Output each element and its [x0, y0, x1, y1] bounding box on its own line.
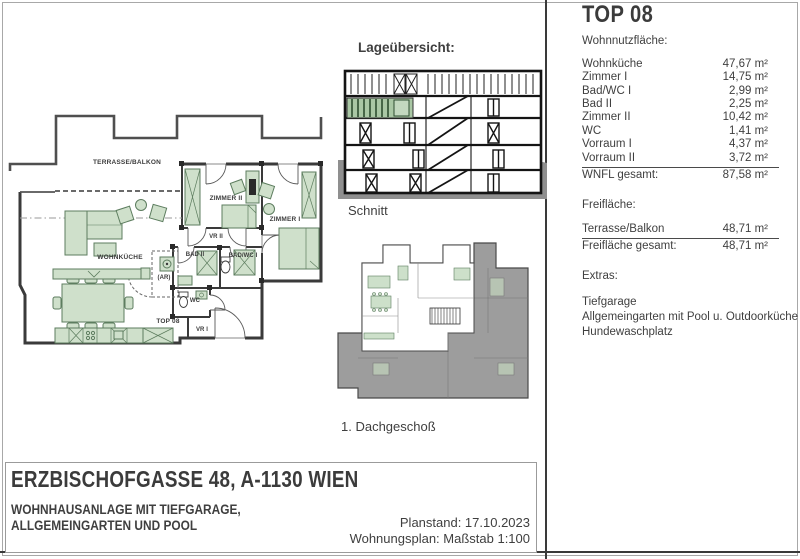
extras-item: Tiefgarage [582, 295, 797, 310]
key-plan [338, 238, 550, 418]
room-row: Vorraum I4,37 m² [582, 138, 768, 151]
frei-total-label: Freifläche gesamt: [582, 240, 677, 253]
info-panel: TOP 08 Wohnnutzfläche: Wohnküche47,67 m²… [582, 8, 797, 340]
subtitle-line1: WOHNHAUSANLAGE MIT TIEFGARAGE, [11, 502, 241, 518]
toilet-badwc1 [221, 257, 230, 273]
label-ar: (AR) [157, 275, 170, 281]
glass-front [20, 191, 182, 192]
bed-zimmer1 [279, 228, 319, 269]
room-row: WC1,41 m² [582, 125, 768, 138]
frei-table: Terrasse/Balkon48,71 m² [582, 223, 768, 236]
plan-sheet: TERRASSE/BALKON WOHNKÜCHE ZIMMER II ZIMM… [0, 0, 800, 559]
room-value: 10,42 m² [723, 111, 768, 124]
room-value: 4,37 m² [729, 138, 768, 151]
label-zimmer1: ZIMMER I [270, 216, 301, 223]
room-label: Vorraum I [582, 138, 632, 151]
room-label: Bad/WC I [582, 85, 631, 98]
room-label: Vorraum II [582, 152, 635, 165]
address: ERZBISCHOFGASSE 48, A-1130 WIEN [11, 466, 359, 493]
room-label: Bad II [582, 98, 612, 111]
room-value: 1,41 m² [729, 125, 768, 138]
room-value: 14,75 m² [723, 71, 768, 84]
table-zimmer1 [264, 204, 275, 215]
title-block: ERZBISCHOFGASSE 48, A-1130 WIEN WOHNHAUS… [5, 462, 537, 553]
label-zimmer2: ZIMMER II [210, 195, 243, 202]
dining-table-group [53, 275, 133, 331]
wardrobe-zimmer1 [302, 172, 316, 218]
label-terrasse: TERRASSE/BALKON [93, 159, 161, 166]
room-label: Zimmer II [582, 111, 631, 124]
wnf-heading: Wohnnutzfläche: [582, 35, 797, 48]
keyplan-caption: 1. Dachgeschoß [341, 419, 436, 434]
subtitle-line2: ALLGEMEINGARTEN UND POOL [11, 518, 241, 534]
freiflaeche-row: Terrasse/Balkon48,71 m² [582, 223, 768, 236]
lage-title: Lageübersicht: [358, 40, 455, 55]
frei-total-row: Freifläche gesamt: 48,71 m² [582, 240, 768, 253]
room-label: Zimmer I [582, 71, 627, 84]
frei-heading: Freifläche: [582, 199, 797, 212]
room-row: Wohnküche47,67 m² [582, 58, 768, 71]
room-value: 3,72 m² [729, 152, 768, 165]
frei-rule [582, 238, 779, 239]
wnfl-total-label: WNFL gesamt: [582, 169, 658, 182]
chair-zimmer1 [258, 182, 274, 198]
kitchen-counter [55, 328, 143, 343]
project-subtitle: WOHNHAUSANLAGE MIT TIEFGARAGE, ALLGEMEIN… [11, 502, 241, 534]
wnfl-total-row: WNFL gesamt: 87,58 m² [582, 169, 768, 182]
extras-item: Allgemeingarten mit Pool u. Outdoorküche [582, 310, 797, 325]
washbasin-bad2 [178, 276, 192, 285]
freiflaeche-value: 48,71 m² [723, 223, 768, 236]
wnfl-rule [582, 167, 779, 168]
kitchen-island [143, 328, 173, 343]
room-label: WC [582, 125, 601, 138]
extras-item: Hundewaschplatz [582, 325, 797, 340]
planstand: Planstand: 17.10.2023 [350, 515, 530, 531]
label-wc: WC [190, 298, 201, 304]
toilet-wc [179, 292, 188, 308]
extras-list: TiefgarageAllgemeingarten mit Pool u. Ou… [582, 295, 797, 340]
room-value: 2,25 m² [729, 98, 768, 111]
wardrobe-zimmer2 [185, 169, 200, 225]
label-vr2: VR II [209, 234, 223, 240]
room-value: 2,99 m² [729, 85, 768, 98]
freiflaeche-label: Terrasse/Balkon [582, 223, 664, 236]
room-label: Wohnküche [582, 58, 643, 71]
label-bad2: BAD II [186, 252, 205, 258]
stair-hatch [430, 308, 460, 324]
schnitt-caption: Schnitt [348, 203, 388, 218]
frei-total-value: 48,71 m² [723, 240, 768, 253]
massstab: Wohnungsplan: Maßstab 1:100 [350, 531, 530, 547]
plan-info: Planstand: 17.10.2023 Wohnungsplan: Maßs… [350, 515, 530, 547]
label-badwc1: BAD/WC I [229, 253, 258, 259]
label-vr1: VR I [196, 327, 208, 333]
room-row: Zimmer II10,42 m² [582, 111, 768, 124]
main-floor-plan: TERRASSE/BALKON WOHNKÜCHE ZIMMER II ZIMM… [10, 95, 335, 387]
unit-title: TOP 08 [582, 8, 763, 21]
room-row: Bad/WC I2,99 m² [582, 85, 768, 98]
building-section [338, 66, 548, 206]
kitchen-sideboard [53, 268, 150, 279]
label-unit: TOP 08 [156, 318, 180, 325]
label-wohnkueche: WOHNKÜCHE [97, 252, 143, 261]
room-row: Vorraum II3,72 m² [582, 152, 768, 165]
room-value: 47,67 m² [723, 58, 768, 71]
extras-heading: Extras: [582, 270, 797, 283]
room-row: Zimmer I14,75 m² [582, 71, 768, 84]
terrace-table [136, 200, 147, 211]
terrace-armchair [149, 204, 166, 221]
area-table: Wohnküche47,67 m²Zimmer I14,75 m²Bad/WC … [582, 58, 768, 165]
room-row: Bad II2,25 m² [582, 98, 768, 111]
wnfl-total-value: 87,58 m² [723, 169, 768, 182]
washer-ar [160, 257, 174, 271]
highlighted-unit [347, 98, 413, 118]
bed-zimmer2 [222, 205, 256, 228]
